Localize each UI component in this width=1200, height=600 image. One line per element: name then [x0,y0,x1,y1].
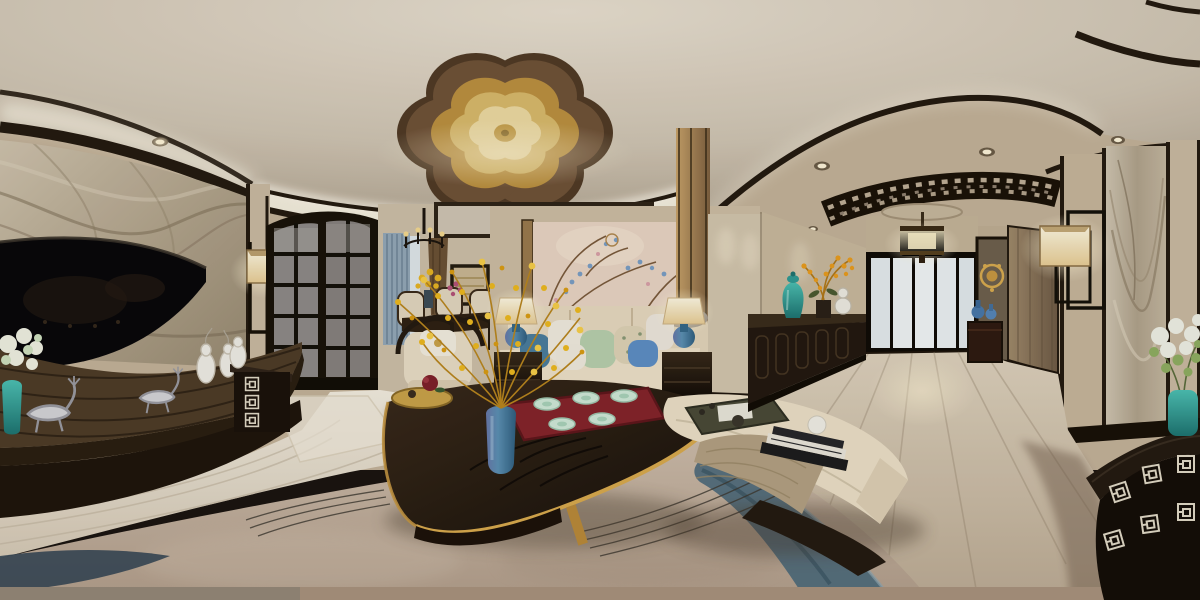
panorama-photo: 360-degree panoramic render of a luxury … [0,0,1200,600]
panorama-canvas [0,0,1200,600]
